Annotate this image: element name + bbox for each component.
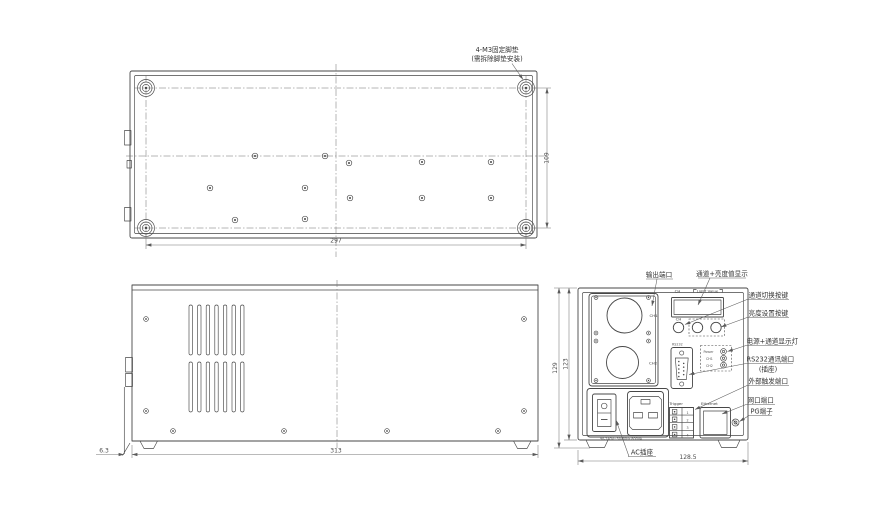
drawing-canvas: 297 109 4-M3固定脚垫 (需拆除脚垫安装): [0, 0, 888, 522]
screw-icon: [232, 217, 238, 223]
ac-pin-live: [649, 413, 658, 419]
brightness-buttons-box: [689, 319, 725, 336]
callout-rs232-port: RS232通讯端口 (插座): [689, 355, 794, 375]
display-ch-label: CH: [675, 289, 681, 294]
screw-icon: [594, 379, 598, 383]
ethernet-connector: Ethernet: [700, 401, 731, 438]
rs232-label: RS232: [672, 343, 683, 347]
feet: [586, 440, 740, 448]
dim-label-6-3: 6.3: [99, 448, 109, 455]
screw-icon: [302, 216, 308, 222]
screw-icon: [647, 331, 651, 335]
callout-brightness-set-key: 亮度设置按键: [721, 309, 789, 328]
callout-text: 电源+通道显示灯: [747, 337, 799, 346]
screw-icon: [144, 409, 149, 414]
screw-icon: [680, 351, 684, 355]
screw-icon: [302, 185, 308, 191]
brightness-up-button: [692, 322, 702, 332]
trigger-pin-2: 2: [686, 418, 688, 422]
dimension-width: 313: [132, 445, 538, 458]
foot-icon: [138, 80, 155, 97]
dimension-depth: 109: [533, 88, 551, 228]
ch1-output-connector: [607, 298, 642, 333]
callout-text: 通道+亮度值显示: [696, 269, 748, 278]
rear-panel-drawing: CH1 CH2 CH Light Value CH: [552, 288, 748, 465]
dim-label-313: 313: [330, 448, 342, 455]
dimension-width: 128.5: [578, 442, 748, 465]
side-bracket: [123, 358, 133, 456]
screw-icon: [594, 331, 598, 335]
callout-text: 网口端口: [748, 396, 774, 405]
dim-label-128-5: 128.5: [679, 454, 696, 461]
screw-icon: [385, 429, 390, 434]
display-area: CH Light Value: [672, 289, 724, 318]
foot-icon: [518, 80, 535, 97]
led-power-icon: [721, 349, 727, 355]
screw-holes: [207, 153, 494, 223]
output-port-area: CH1 CH2: [589, 294, 658, 387]
foot-note: 4-M3固定脚垫 (需拆除脚垫安装): [471, 45, 523, 80]
screw-icon: [282, 429, 287, 434]
trigger-connector: Trigger 1 2 3 4: [669, 401, 694, 438]
callout-text: AC插座: [631, 448, 654, 457]
callout-text: 输出端口: [646, 270, 672, 279]
channel-switch-button: [673, 322, 683, 332]
screw-holes: [594, 296, 650, 383]
callout-display: 通道+亮度值显示: [696, 269, 748, 305]
screw-icon: [346, 160, 352, 166]
power-switch: [593, 394, 617, 432]
foot-icon: [140, 441, 158, 449]
ch2-output-connector: [607, 347, 639, 379]
callout-pg-terminal: PG端子: [740, 407, 774, 422]
screw-icon: [594, 339, 598, 343]
screw-icon: [522, 317, 527, 322]
foot-icon: [514, 441, 532, 449]
button-row: CH: [673, 317, 724, 337]
cad-drawing-sheet: 297 109 4-M3固定脚垫 (需拆除脚垫安装): [0, 0, 888, 522]
screw-icon: [522, 409, 527, 414]
screw-icon: [419, 195, 425, 201]
ac-inlet: [628, 392, 664, 436]
ch1-output-label: CH1: [650, 313, 659, 318]
ac-pin-earth: [641, 400, 650, 405]
enclosure-inner-outline: [135, 76, 533, 234]
value-display-window: [674, 300, 721, 315]
display-light-value-label: Light Value: [697, 289, 719, 294]
trigger-pin-1: 1: [686, 411, 688, 415]
dim-label-297: 297: [330, 238, 342, 245]
foot-note-line1: 4-M3固定脚垫: [476, 45, 519, 54]
led-ch1-label: CH1: [706, 357, 713, 361]
callout-text-sub: (插座): [759, 365, 777, 374]
dimension-height-outer: 129: [552, 288, 590, 448]
led-ch1-icon: [721, 355, 727, 361]
dim-label-123: 123: [563, 358, 570, 370]
callout-text: 亮度设置按键: [749, 309, 789, 318]
screw-icon: [647, 339, 651, 343]
ch2-output-label: CH2: [649, 361, 658, 366]
dsub-pins: [678, 361, 684, 378]
trigger-label: Trigger: [669, 401, 684, 406]
callout-channel-switch-key: 通道切换按键: [685, 291, 789, 325]
foot-icon: [586, 440, 608, 448]
rating-label: 90-240V~50/60Hz 800VA: [600, 437, 643, 441]
callout-text: PG端子: [751, 407, 774, 416]
channel-button-label: CH: [676, 317, 682, 322]
dim-label-129: 129: [552, 362, 559, 374]
trigger-pin-3: 3: [686, 426, 688, 430]
dimension-height-inner: 123: [563, 288, 578, 440]
ac-pin-neutral: [634, 413, 643, 419]
bracket-mark: [720, 290, 723, 293]
brightness-down-button: [711, 322, 721, 332]
switch-off-symbol: [601, 403, 607, 409]
callout-text: 通道切换按键: [749, 291, 789, 300]
screw-icon: [171, 429, 176, 434]
callout-text: 外部触发端口: [749, 377, 789, 386]
dsub-shell: [675, 358, 688, 380]
screw-icon: [347, 195, 353, 201]
foot-icon: [138, 220, 155, 237]
enclosure-outline: [130, 71, 537, 238]
screw-icon: [488, 195, 494, 201]
led-power-label: Power: [704, 350, 715, 354]
vent-slots-lower: [189, 362, 244, 412]
side-view-drawing: 313 6.3: [96, 280, 538, 458]
rs232-connector: RS232: [671, 343, 693, 389]
pg-terminal: [732, 419, 739, 426]
enclosure-outline: [132, 285, 538, 441]
screw-icon: [144, 317, 149, 322]
led-ch2-label: CH2: [706, 364, 713, 368]
screw-icon: [680, 382, 684, 386]
screw-icon: [647, 379, 651, 383]
screw-icon: [419, 159, 425, 165]
centerlines: [126, 64, 544, 257]
foot-icon: [718, 440, 740, 448]
dimension-foot-offset: 6.3: [96, 448, 124, 455]
screw-icon: [488, 159, 494, 165]
callout-power-channel-leds: 电源+通道显示灯: [728, 337, 799, 352]
value-display: [672, 298, 724, 318]
screw-icon: [207, 185, 213, 191]
bottom-view-drawing: 297 109 4-M3固定脚垫 (需拆除脚垫安装): [125, 45, 552, 257]
power-entry-group: [587, 389, 669, 438]
foot-icon: [518, 220, 535, 237]
foot-note-line2: (需拆除脚垫安装): [471, 54, 522, 63]
trigger-terminals: [672, 409, 677, 436]
trigger-pin-4: 4: [686, 434, 688, 438]
dim-label-109: 109: [544, 152, 551, 164]
led-ch2-icon: [721, 362, 727, 368]
callout-text: RS232通讯端口: [747, 355, 795, 364]
vent-slots-upper: [189, 305, 244, 355]
screw-icon: [496, 429, 501, 434]
